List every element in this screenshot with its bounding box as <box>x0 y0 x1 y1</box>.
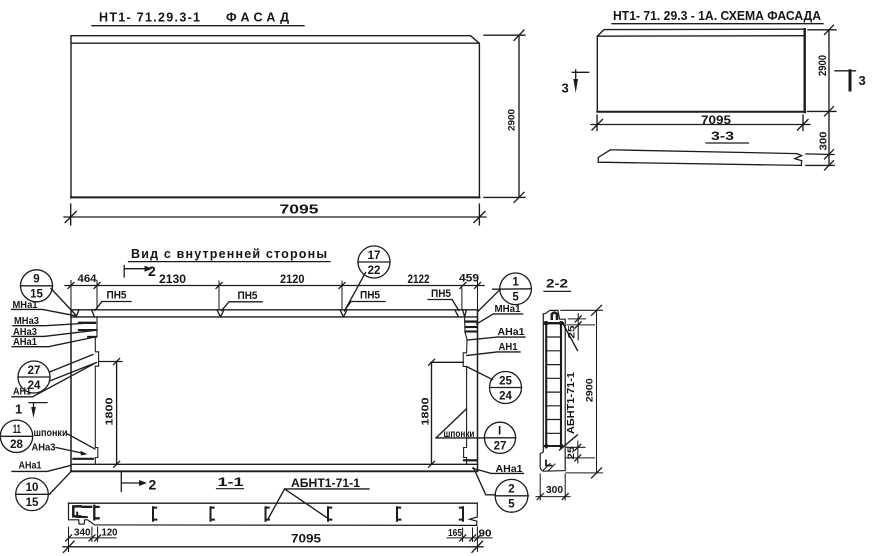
svg-text:2: 2 <box>149 477 157 493</box>
svg-text:7095: 7095 <box>701 113 731 127</box>
svg-text:АБНТ1-71-1: АБНТ1-71-1 <box>291 476 360 490</box>
svg-text:24: 24 <box>499 390 512 402</box>
svg-text:7095: 7095 <box>291 532 321 546</box>
svg-text:165: 165 <box>448 527 462 539</box>
svg-text:2900: 2900 <box>585 378 596 402</box>
svg-text:2122: 2122 <box>408 272 430 286</box>
svg-text:ПН5: ПН5 <box>360 290 380 302</box>
svg-text:1800: 1800 <box>420 397 432 425</box>
svg-text:2: 2 <box>148 263 156 279</box>
svg-text:300: 300 <box>546 484 563 496</box>
svg-text:ФАСАД: ФАСАД <box>226 11 289 25</box>
svg-text:27: 27 <box>494 441 507 453</box>
svg-text:90: 90 <box>479 528 492 540</box>
svg-text:300: 300 <box>819 131 830 150</box>
svg-text:120: 120 <box>102 527 118 539</box>
svg-text:3: 3 <box>859 73 866 88</box>
svg-text:1800: 1800 <box>104 397 116 425</box>
svg-text:15: 15 <box>30 289 43 301</box>
svg-text:НТ1- 71.29.3-1: НТ1- 71.29.3-1 <box>99 11 200 25</box>
svg-text:шпонки: шпонки <box>34 428 68 439</box>
svg-text:3-3: 3-3 <box>711 129 734 143</box>
svg-text:7095: 7095 <box>280 203 319 217</box>
svg-text:340: 340 <box>74 527 91 539</box>
svg-text:ПН5: ПН5 <box>238 290 258 302</box>
svg-text:22: 22 <box>368 265 381 277</box>
svg-text:17: 17 <box>368 250 381 262</box>
svg-text:25: 25 <box>499 375 512 387</box>
svg-text:1: 1 <box>512 277 519 289</box>
svg-text:15: 15 <box>26 497 39 509</box>
svg-text:5: 5 <box>508 499 515 511</box>
svg-text:АНа1: АНа1 <box>19 460 42 471</box>
svg-text:2130: 2130 <box>159 272 186 286</box>
svg-text:25: 25 <box>566 446 577 460</box>
svg-text:ПН5: ПН5 <box>107 290 127 302</box>
svg-text:459: 459 <box>459 273 479 285</box>
svg-text:ПН5: ПН5 <box>431 288 451 300</box>
svg-text:2900: 2900 <box>817 55 829 76</box>
svg-text:11: 11 <box>13 424 21 436</box>
svg-text:I: I <box>498 426 501 438</box>
svg-text:2-2: 2-2 <box>546 277 568 291</box>
svg-text:10: 10 <box>26 482 39 494</box>
svg-text:464: 464 <box>78 273 98 285</box>
svg-text:28: 28 <box>10 439 23 451</box>
svg-text:25: 25 <box>566 325 577 339</box>
svg-text:27: 27 <box>28 365 41 377</box>
svg-text:1: 1 <box>15 402 22 417</box>
svg-text:3: 3 <box>562 81 569 96</box>
svg-text:1-1: 1-1 <box>218 475 244 489</box>
svg-text:2: 2 <box>508 484 514 496</box>
svg-text:5: 5 <box>512 292 519 304</box>
svg-text:2900: 2900 <box>507 109 518 131</box>
svg-text:2120: 2120 <box>280 272 305 286</box>
svg-text:НТ1- 71. 29.3 - 1А. СХЕМА ФАСА: НТ1- 71. 29.3 - 1А. СХЕМА ФАСАДА <box>613 9 821 23</box>
svg-text:АБНТ1-71-1: АБНТ1-71-1 <box>566 372 577 434</box>
svg-text:АНа3: АНа3 <box>32 443 56 454</box>
svg-text:24: 24 <box>28 380 41 392</box>
svg-text:9: 9 <box>33 274 39 286</box>
